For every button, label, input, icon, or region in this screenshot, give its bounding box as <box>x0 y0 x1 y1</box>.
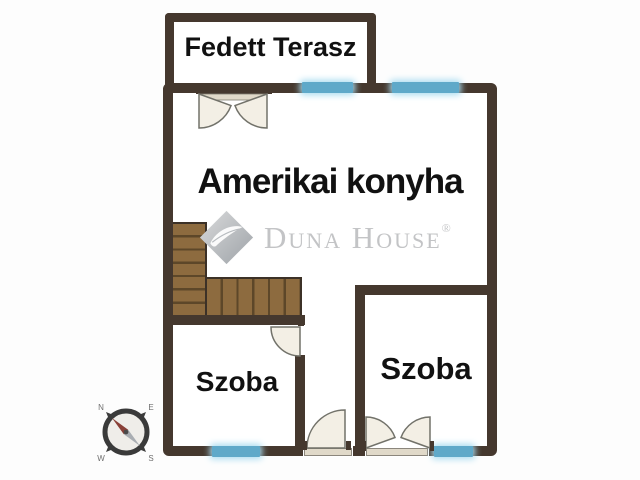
door-leaf <box>401 417 430 448</box>
door-jamb <box>298 357 304 362</box>
door-lintel <box>196 90 272 94</box>
interior-wall-room-right-top <box>355 285 487 295</box>
floorplan-canvas: Fedett Terasz Duna House® <box>0 0 640 480</box>
compass-west-label: W <box>97 454 105 463</box>
compass-rose-icon: N E W S <box>93 399 159 465</box>
window-marker-top-left <box>302 82 353 93</box>
terrace-label: Fedett Terasz <box>165 32 376 63</box>
door-room-left-single <box>260 321 304 363</box>
compass-north-label: N <box>98 403 104 412</box>
door-leaf <box>307 410 345 448</box>
door-terrace-double <box>195 90 273 145</box>
door-jamb <box>346 441 351 450</box>
room-label-kitchen: Amerikai konyha <box>173 162 487 202</box>
door-jamb <box>298 321 304 326</box>
room-label-right: Szoba <box>368 351 484 387</box>
door-jamb <box>302 441 307 450</box>
door-leaf <box>271 327 300 356</box>
duna-house-brand-text: Duna House® <box>264 222 451 253</box>
registered-trademark-icon: ® <box>442 221 451 235</box>
door-room-right-double <box>362 407 434 451</box>
door-entrance-single <box>300 404 352 452</box>
window-marker-bottom-left <box>212 446 260 457</box>
compass-east-label: E <box>148 403 153 412</box>
staircase-horizontal-flight <box>207 277 302 315</box>
room-label-left: Szoba <box>178 366 296 398</box>
window-marker-bottom-right <box>434 446 473 457</box>
window-marker-top-right <box>392 82 459 93</box>
door-jamb <box>362 441 366 451</box>
duna-house-logo-icon <box>198 209 255 266</box>
door-jamb <box>430 441 434 451</box>
door-leaf <box>366 417 395 448</box>
compass-south-label: S <box>148 454 153 463</box>
duna-house-watermark: Duna House® <box>198 209 451 266</box>
